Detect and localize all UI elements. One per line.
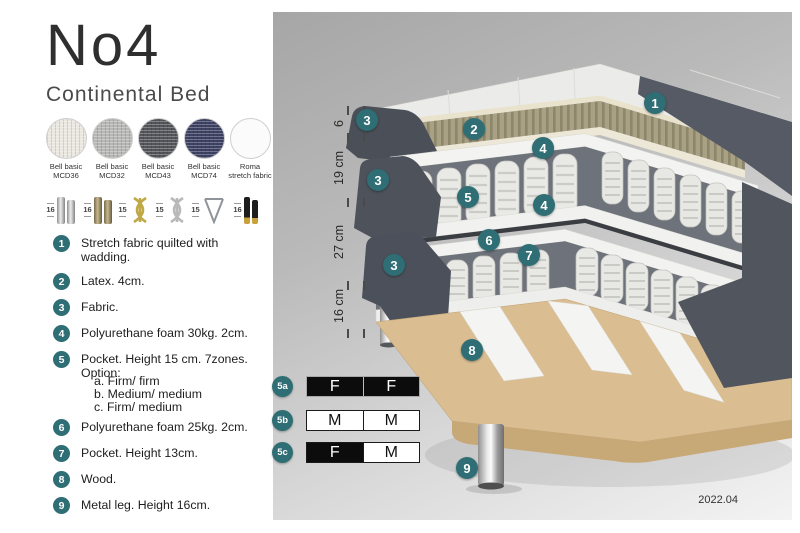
- firmness-cell-left: F: [307, 443, 363, 462]
- callout-2-badge: 2: [463, 118, 485, 140]
- fabric-label: Romastretch fabric: [228, 162, 271, 181]
- dimension-tick: [363, 198, 365, 207]
- leg-option-chrome: 16: [42, 183, 79, 237]
- fabric-circle-icon: [138, 118, 179, 159]
- dimension-tick: [363, 281, 365, 290]
- measure-tick: [192, 203, 199, 204]
- fabric-code: MCD36: [53, 171, 79, 180]
- pocket-spring: [654, 168, 675, 220]
- wood-leg-icon: [94, 197, 112, 224]
- measure-tick: [234, 203, 241, 204]
- fabric-name: Roma: [240, 162, 260, 171]
- list-item-1: 1Stretch fabric quilted with wadding.: [53, 235, 271, 264]
- fabric-label: Bell basicMCD43: [142, 162, 175, 181]
- leg-height-label: 15: [118, 206, 126, 214]
- dimension-tick: [363, 133, 365, 142]
- leg-height-measure: 15: [191, 201, 199, 219]
- fabric-code: stretch fabric: [228, 171, 271, 180]
- measure-tick: [156, 216, 163, 217]
- dimension-label-27cm: 27 cm: [332, 206, 346, 278]
- dimension-tick: [347, 198, 349, 207]
- fabric-code: MCD32: [99, 171, 125, 180]
- part-number-badge: 4: [53, 325, 70, 342]
- product-sheet: No4 Continental Bed Bell basicMCD36 Bell…: [0, 0, 800, 533]
- fabric-label: Bell basicMCD32: [96, 162, 129, 181]
- part-text: Stretch fabric quilted with wadding.: [81, 235, 271, 264]
- firmness-badge-5b: 5b: [272, 410, 293, 431]
- callout-3-badge: 3: [367, 169, 389, 191]
- firmness-badge-5c: 5c: [272, 442, 293, 463]
- firmness-row: F M: [306, 442, 420, 463]
- firmness-cell-right: F: [363, 377, 420, 396]
- pocket-spring: [601, 255, 623, 303]
- list-item-2: 2Latex. 4cm.: [53, 273, 271, 290]
- pocket-option-c: c. Firm/ medium: [94, 401, 271, 414]
- firmness-option-5b: 5b M M: [272, 410, 420, 431]
- callout-1-badge: 1: [644, 92, 666, 114]
- hairpin-leg-icon: [202, 196, 226, 224]
- firmness-row: M M: [306, 410, 420, 431]
- measure-tick: [192, 216, 199, 217]
- leg-height-measure: 15: [155, 201, 163, 219]
- page-subtitle: Continental Bed: [46, 83, 210, 107]
- version-label: 2022.04: [690, 494, 738, 506]
- fabric-name: Bell basic: [142, 162, 175, 171]
- pocket-spring: [626, 263, 648, 311]
- measure-tick: [84, 216, 91, 217]
- part-text: Fabric.: [81, 299, 119, 315]
- pocket-spring: [706, 183, 727, 235]
- measure-tick: [119, 203, 126, 204]
- front-metal-leg: [478, 424, 504, 486]
- pocket-spring: [602, 152, 623, 204]
- firmness-cell-right: M: [363, 443, 420, 462]
- leg-height-label: 15: [155, 206, 163, 214]
- fabric-code: MCD74: [191, 171, 217, 180]
- measure-tick: [84, 203, 91, 204]
- leg-option-wood: 16: [79, 183, 116, 237]
- dimension-label-6: 6: [332, 112, 346, 136]
- part-text: Latex. 4cm.: [81, 273, 145, 289]
- fabric-circle-icon: [92, 118, 133, 159]
- leg-option-black-gold: 16: [227, 183, 264, 237]
- front-leg-foot: [478, 483, 504, 490]
- fabric-swatch-row: Bell basicMCD36 Bell basicMCD32 Bell bas…: [44, 118, 272, 181]
- callout-8-badge: 8: [461, 339, 483, 361]
- pocket-spring: [651, 270, 673, 318]
- dimension-tick: [347, 329, 349, 338]
- gold-twist-leg-icon: [129, 196, 151, 224]
- dimension-tick: [347, 281, 349, 290]
- part-number-badge: 1: [53, 235, 70, 252]
- fabric-label: Bell basicMCD74: [188, 162, 221, 181]
- measure-tick: [47, 216, 54, 217]
- part-text: Polyurethane foam 30kg. 2cm.: [81, 325, 248, 341]
- list-item-7: 7Pocket. Height 13cm.: [53, 445, 271, 462]
- fabric-name: Bell basic: [96, 162, 129, 171]
- list-item-6: 6Polyurethane foam 25kg. 2cm.: [53, 419, 271, 436]
- firmness-option-5c: 5c F M: [272, 442, 420, 463]
- leg-option-silver-twist: 15: [153, 183, 190, 237]
- callout-9-badge: 9: [456, 457, 478, 479]
- list-item-4: 4Polyurethane foam 30kg. 2cm.: [53, 325, 271, 342]
- silver-twist-leg-icon: [166, 196, 188, 224]
- leg-height-label: 16: [233, 206, 241, 214]
- leg-height-measure: 15: [118, 201, 126, 219]
- callout-3-badge: 3: [383, 254, 405, 276]
- fabric-label: Bell basicMCD36: [50, 162, 83, 181]
- fabric-circle-icon: [46, 118, 87, 159]
- part-number-badge: 7: [53, 445, 70, 462]
- pocket-spring: [628, 160, 649, 212]
- part-number-badge: 2: [53, 273, 70, 290]
- leg-option-gold-twist: 15: [116, 183, 153, 237]
- firmness-row: F F: [306, 376, 420, 397]
- list-item-5: 5Pocket. Height 15 cm. 7zones. Option:: [53, 351, 271, 380]
- fabric-swatch-mcd43: Bell basicMCD43: [136, 118, 180, 181]
- callout-4-badge: 4: [533, 194, 555, 216]
- dimension-tick: [347, 133, 349, 142]
- fabric-code: MCD43: [145, 171, 171, 180]
- firmness-cell-left: F: [307, 377, 363, 396]
- part-text: Pocket. Height 13cm.: [81, 445, 198, 461]
- part-number-badge: 8: [53, 471, 70, 488]
- callout-5-badge: 5: [457, 186, 479, 208]
- firmness-option-5a: 5a F F: [272, 376, 420, 397]
- firmness-cell-right: M: [363, 411, 420, 430]
- part-number-badge: 5: [53, 351, 70, 368]
- pocket-options: a. Firm/ firm b. Medium/ medium c. Firm/…: [94, 375, 271, 414]
- fabric-swatch-mcd74: Bell basicMCD74: [182, 118, 226, 181]
- firmness-cell-left: M: [307, 411, 363, 430]
- fabric-circle-icon: [230, 118, 271, 159]
- dimension-tick: [363, 329, 365, 338]
- dimension-label-16cm: 16 cm: [332, 285, 346, 327]
- dimension-label-19cm: 19 cm: [332, 140, 346, 196]
- list-item-3: 3Fabric.: [53, 299, 271, 316]
- part-number-badge: 9: [53, 497, 70, 514]
- list-item-8: 8Wood.: [53, 471, 271, 488]
- fabric-name: Bell basic: [50, 162, 83, 171]
- fabric-circle-icon: [184, 118, 225, 159]
- leg-height-measure: 16: [46, 201, 54, 219]
- part-text: Polyurethane foam 25kg. 2cm.: [81, 419, 248, 435]
- leg-height-label: 16: [46, 206, 54, 214]
- firmness-badge-5a: 5a: [272, 376, 293, 397]
- pocket-spring: [553, 154, 577, 214]
- measure-tick: [234, 216, 241, 217]
- page-title: No4: [46, 16, 210, 77]
- callout-7-badge: 7: [518, 244, 540, 266]
- leg-option-hairpin: 15: [190, 183, 227, 237]
- callout-6-badge: 6: [478, 229, 500, 251]
- part-number-badge: 6: [53, 419, 70, 436]
- black-gold-leg-icon: [244, 197, 258, 224]
- callout-3-badge: 3: [356, 109, 378, 131]
- pocket-spring: [680, 175, 701, 227]
- leg-option-row: 16 16 15 15 15 16: [42, 183, 264, 237]
- leg-height-label: 16: [83, 206, 91, 214]
- fabric-swatch-roma: Romastretch fabric: [228, 118, 272, 181]
- list-item-9: 9Metal leg. Height 16cm.: [53, 497, 271, 514]
- leg-height-label: 15: [191, 206, 199, 214]
- fabric-swatch-mcd36: Bell basicMCD36: [44, 118, 88, 181]
- pocket-spring: [576, 248, 598, 296]
- parts-list: 1Stretch fabric quilted with wadding. 2L…: [53, 235, 271, 523]
- measure-tick: [119, 216, 126, 217]
- brand-block: No4 Continental Bed: [46, 16, 210, 107]
- fabric-name: Bell basic: [188, 162, 221, 171]
- callout-4-badge: 4: [532, 137, 554, 159]
- chrome-leg-icon: [57, 197, 75, 224]
- leg-height-measure: 16: [83, 201, 91, 219]
- measure-tick: [47, 203, 54, 204]
- fabric-swatch-mcd32: Bell basicMCD32: [90, 118, 134, 181]
- part-number-badge: 3: [53, 299, 70, 316]
- pocket-spring: [495, 161, 519, 221]
- part-text: Wood.: [81, 471, 116, 487]
- part-text: Metal leg. Height 16cm.: [81, 497, 210, 513]
- leg-height-measure: 16: [233, 201, 241, 219]
- dimension-tick: [347, 106, 349, 115]
- measure-tick: [156, 203, 163, 204]
